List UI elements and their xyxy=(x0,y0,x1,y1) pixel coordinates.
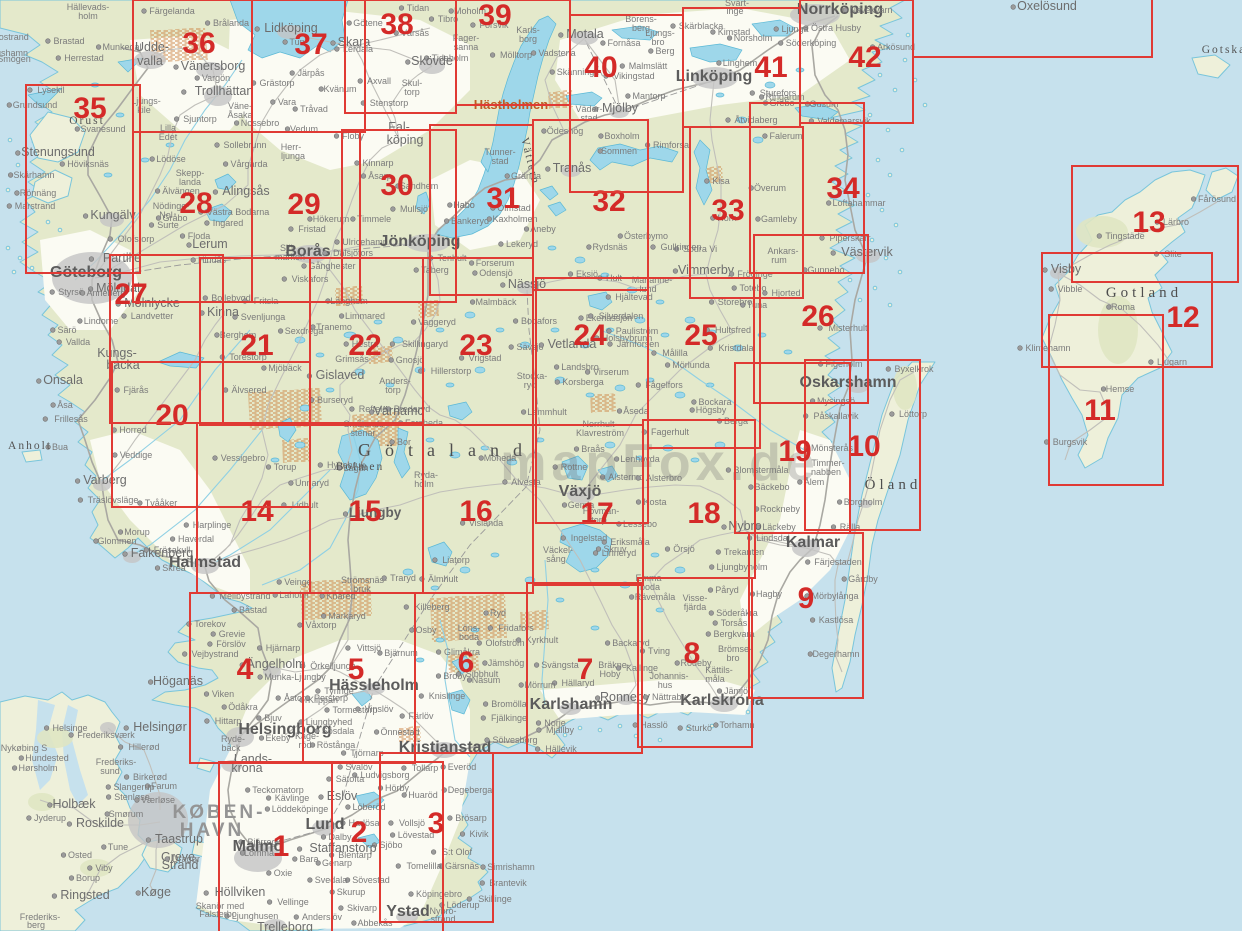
place-label: Roma xyxy=(1111,302,1135,312)
city-dot xyxy=(341,751,346,756)
sheet-number-21[interactable]: 21 xyxy=(240,329,273,362)
city-dot xyxy=(195,76,200,81)
place-label: sång xyxy=(546,554,566,564)
place-label: Särö xyxy=(57,325,76,335)
city-dot xyxy=(620,64,625,69)
city-dot xyxy=(501,283,506,288)
sheet-number-2[interactable]: 2 xyxy=(351,816,368,849)
sheet-number-6[interactable]: 6 xyxy=(458,646,475,679)
city-dot xyxy=(257,646,262,651)
place-label: hus xyxy=(658,680,673,690)
city-dot xyxy=(1097,234,1102,239)
place-label: Hundested xyxy=(25,753,69,763)
skerry xyxy=(12,270,16,274)
place-label: Svenljunga xyxy=(241,312,286,322)
place-label: Forserum xyxy=(476,258,515,268)
place-label: Vänersborg xyxy=(181,59,246,73)
sheet-number-38[interactable]: 38 xyxy=(380,8,413,41)
city-dot xyxy=(1191,197,1196,202)
city-dot xyxy=(351,217,356,222)
city-dot xyxy=(750,91,755,96)
place-label: Rävemåla xyxy=(635,592,676,602)
city-dot xyxy=(234,121,239,126)
city-dot xyxy=(149,223,154,228)
place-label: Götene xyxy=(353,18,383,28)
city-dot xyxy=(732,286,737,291)
city-dot xyxy=(318,463,323,468)
place-label: Roskilde xyxy=(76,816,124,830)
place-label: Brösarp xyxy=(455,813,487,823)
city-dot xyxy=(262,366,267,371)
place-label: Lysekil xyxy=(37,85,64,95)
skerry xyxy=(898,270,902,274)
place-label: Skärblacka xyxy=(679,21,724,31)
city-dot xyxy=(293,107,298,112)
region-label: Bolmen xyxy=(336,461,384,473)
place-label: Grundsund xyxy=(13,100,58,110)
place-label: Fal- xyxy=(388,120,410,134)
sheet-number-26[interactable]: 26 xyxy=(801,300,834,333)
city-dot xyxy=(537,728,542,733)
place-label: Påskallavik xyxy=(813,411,859,421)
city-dot xyxy=(709,565,714,570)
place-label: Landvetter xyxy=(131,311,174,321)
place-label: Trelleborg xyxy=(257,920,313,931)
place-label: Kosta xyxy=(643,497,666,507)
city-dot xyxy=(106,795,111,800)
moor-hatch xyxy=(282,438,311,463)
place-label: Torhamn xyxy=(719,720,754,730)
city-dot xyxy=(15,191,20,196)
place-label: Herrestad xyxy=(64,53,104,63)
place-label: Killeberg xyxy=(414,602,449,612)
city-dot xyxy=(267,900,272,905)
city-dot xyxy=(308,878,313,883)
skerry xyxy=(746,710,750,714)
place-label: Ystad xyxy=(386,903,430,920)
place-label: Tjörnarp xyxy=(350,748,384,758)
place-label: Hoby xyxy=(599,669,621,679)
watermark: mapFox.de xyxy=(500,434,820,492)
city-dot xyxy=(562,503,567,508)
skerry xyxy=(873,286,877,290)
sheet-number-29[interactable]: 29 xyxy=(287,188,320,221)
city-dot xyxy=(636,383,641,388)
city-dot xyxy=(831,251,836,256)
city-dot xyxy=(28,88,33,93)
sheet-number-24[interactable]: 24 xyxy=(573,319,607,352)
small-lake xyxy=(716,93,724,97)
city-dot xyxy=(203,296,208,301)
city-dot xyxy=(460,832,465,837)
sheet-number-4[interactable]: 4 xyxy=(237,653,254,686)
place-label: Berg xyxy=(655,46,674,56)
place-label: Marstrand xyxy=(15,201,56,211)
city-dot xyxy=(255,27,260,32)
sheet-number-12[interactable]: 12 xyxy=(1166,301,1199,334)
place-label: Traryd xyxy=(390,573,416,583)
city-dot xyxy=(210,594,215,599)
place-label: Höllviken xyxy=(215,885,266,899)
sheet-number-13[interactable]: 13 xyxy=(1132,206,1165,239)
small-lake xyxy=(295,442,305,448)
city-dot xyxy=(282,277,287,282)
sheet-number-16[interactable]: 16 xyxy=(459,495,492,528)
place-label: Lindome xyxy=(84,316,119,326)
place-label: Grevie xyxy=(219,629,246,639)
city-dot xyxy=(608,342,613,347)
region-label: Gotland xyxy=(1106,285,1182,301)
city-dot xyxy=(831,525,836,530)
place-label: Vimmerby xyxy=(678,263,735,277)
city-dot xyxy=(404,605,409,610)
city-dot xyxy=(542,129,547,134)
sheet-number-8[interactable]: 8 xyxy=(684,637,701,670)
place-label: Skövde xyxy=(411,54,453,68)
city-dot xyxy=(554,365,559,370)
city-dot xyxy=(636,500,641,505)
city-dot xyxy=(449,9,454,14)
place-label: Helsingør xyxy=(133,720,187,734)
city-dot xyxy=(890,412,895,417)
city-dot xyxy=(156,216,161,221)
region-label: Öland xyxy=(865,476,922,493)
city-dot xyxy=(587,245,592,250)
city-dot xyxy=(37,379,42,384)
city-dot xyxy=(50,290,55,295)
skerry xyxy=(6,246,10,250)
place-label: stenar xyxy=(350,428,375,438)
place-label: Höganäs xyxy=(153,674,203,688)
city-dot xyxy=(320,594,325,599)
small-lake xyxy=(326,388,334,392)
place-label: Hittarp xyxy=(215,716,242,726)
place-label: Nykøbing S xyxy=(1,743,48,753)
place-label: Fjärås xyxy=(123,385,149,395)
sheet-number-34[interactable]: 34 xyxy=(826,172,860,205)
city-dot xyxy=(539,343,544,348)
sheet-number-41[interactable]: 41 xyxy=(754,51,787,84)
skerry xyxy=(598,728,602,732)
sheet-number-22[interactable]: 22 xyxy=(348,329,381,362)
city-dot xyxy=(410,628,415,633)
city-dot xyxy=(706,632,711,637)
place-label: Hagby xyxy=(756,589,783,599)
skerry xyxy=(6,188,10,192)
sheet-number-15[interactable]: 15 xyxy=(348,495,381,528)
skerry xyxy=(888,173,892,177)
city-dot xyxy=(618,234,623,239)
city-dot xyxy=(629,595,634,600)
place-label: Mjöbäck xyxy=(268,363,302,373)
city-dot xyxy=(223,162,228,167)
city-dot xyxy=(555,380,560,385)
place-label: Vejbystrand xyxy=(191,649,238,659)
city-dot xyxy=(67,822,72,827)
place-label: torp xyxy=(404,87,420,97)
place-label: röd xyxy=(298,740,311,750)
skerry xyxy=(858,298,862,302)
city-dot xyxy=(331,41,336,46)
city-dot xyxy=(516,638,521,643)
city-dot xyxy=(222,705,227,710)
place-label: Gullringen xyxy=(660,242,701,252)
city-dot xyxy=(1049,287,1054,292)
skerry xyxy=(848,278,852,282)
place-label: Arkösund xyxy=(877,42,915,52)
sheet-number-25[interactable]: 25 xyxy=(684,319,717,352)
skerry xyxy=(886,128,890,132)
city-dot xyxy=(708,588,713,593)
sheet-number-18[interactable]: 18 xyxy=(687,497,720,530)
city-dot xyxy=(325,708,330,713)
city-dot xyxy=(561,536,566,541)
place-label: Stenungsund xyxy=(21,145,95,159)
place-label: Hørsholm xyxy=(18,763,57,773)
place-label: Sösdala xyxy=(322,726,355,736)
place-label: Trollhättan xyxy=(195,84,254,98)
sheet-number-20[interactable]: 20 xyxy=(155,399,188,432)
place-label: holm xyxy=(78,11,98,21)
sheet-number-30[interactable]: 30 xyxy=(380,169,413,202)
place-label: Norje xyxy=(544,718,566,728)
city-dot xyxy=(83,214,88,219)
place-label: Österbymo xyxy=(624,231,668,241)
city-dot xyxy=(352,921,357,926)
city-dot xyxy=(617,409,622,414)
city-dot xyxy=(709,300,714,305)
city-dot xyxy=(519,683,524,688)
city-dot xyxy=(266,465,271,470)
place-label: Hjorted xyxy=(771,288,800,298)
place-label: Örsjö xyxy=(673,544,695,554)
place-label: Färjestaden xyxy=(814,557,862,567)
place-label: Oxie xyxy=(274,868,293,878)
city-dot xyxy=(106,785,111,790)
sheet-number-3[interactable]: 3 xyxy=(428,807,445,840)
city-dot xyxy=(705,179,710,184)
city-dot xyxy=(1043,268,1048,273)
city-dot xyxy=(211,632,216,637)
small-lake xyxy=(675,392,685,398)
place-label: HAVN xyxy=(180,820,244,841)
city-dot xyxy=(118,530,123,535)
city-dot xyxy=(257,716,262,721)
city-dot xyxy=(763,134,768,139)
place-label: berg xyxy=(27,920,45,930)
city-dot xyxy=(1011,5,1016,10)
city-dot xyxy=(350,407,355,412)
place-label: Falerum xyxy=(769,131,802,141)
city-dot xyxy=(411,320,416,325)
sheet-number-27[interactable]: 27 xyxy=(114,278,147,311)
place-label: Tollarp xyxy=(412,763,439,773)
sheet-number-23[interactable]: 23 xyxy=(459,329,492,362)
skerry xyxy=(880,208,884,212)
place-label: Edet xyxy=(159,132,178,142)
place-label: Vellinge xyxy=(277,897,309,907)
small-lake xyxy=(496,328,504,332)
place-label: Boxholm xyxy=(604,131,639,141)
sheet-index-map: HunnebostrandKungshamnSmögenBrastadHerre… xyxy=(0,0,1242,931)
city-dot xyxy=(550,70,555,75)
place-label: Sätofta xyxy=(336,774,365,784)
sheet-number-5[interactable]: 5 xyxy=(348,653,365,686)
city-dot xyxy=(155,566,160,571)
place-label: Sjöbo xyxy=(379,840,402,850)
place-label: sund xyxy=(100,766,120,776)
sheet-number-42[interactable]: 42 xyxy=(848,41,881,74)
city-dot xyxy=(191,258,196,263)
city-dot xyxy=(419,694,424,699)
city-dot xyxy=(142,9,147,14)
place-label: Kisa xyxy=(712,176,730,186)
place-label: Jönköping xyxy=(380,233,461,250)
place-label: Knislinge xyxy=(429,691,466,701)
sheet-number-32[interactable]: 32 xyxy=(592,185,625,218)
city-dot xyxy=(52,894,57,899)
place-label: Tuna xyxy=(747,300,767,310)
sheet-number-11[interactable]: 11 xyxy=(1084,394,1116,427)
place-label: S:t Olof xyxy=(442,847,473,857)
city-dot xyxy=(358,79,363,84)
small-lake xyxy=(656,300,664,304)
sheet-number-19[interactable]: 19 xyxy=(778,435,811,468)
sheet-number-39[interactable]: 39 xyxy=(478,0,511,32)
city-dot xyxy=(122,314,127,319)
city-dot xyxy=(343,512,348,517)
place-label: Sjuntorp xyxy=(183,114,217,124)
city-dot xyxy=(170,537,175,542)
small-lake xyxy=(551,328,559,332)
city-dot xyxy=(675,661,680,666)
skerry xyxy=(618,724,622,728)
skerry xyxy=(866,193,870,197)
city-dot xyxy=(182,652,187,657)
skerry xyxy=(903,58,907,62)
place-label: Järnforsen xyxy=(617,339,660,349)
place-label: Vårgårda xyxy=(230,159,267,169)
small-lake xyxy=(116,113,124,117)
place-label: Brastad xyxy=(53,36,84,46)
city-dot xyxy=(593,551,598,556)
sheet-number-28[interactable]: 28 xyxy=(179,187,212,220)
city-dot xyxy=(643,695,648,700)
skerry xyxy=(906,33,910,37)
small-lake xyxy=(548,246,556,250)
place-label: Lärbro xyxy=(1163,217,1189,227)
place-label: Veinge xyxy=(284,577,312,587)
place-label: Kalmar xyxy=(786,534,840,551)
sheet-number-14[interactable]: 14 xyxy=(240,495,274,528)
sheet-number-33[interactable]: 33 xyxy=(711,194,744,227)
city-dot xyxy=(180,234,185,239)
small-lake xyxy=(436,328,444,332)
sheet-number-35[interactable]: 35 xyxy=(73,92,106,125)
sheet-number-36[interactable]: 36 xyxy=(182,27,215,60)
city-dot xyxy=(665,363,670,368)
city-dot xyxy=(155,189,160,194)
city-dot xyxy=(305,696,310,701)
place-label: Hillerød xyxy=(128,742,159,752)
small-lake xyxy=(316,353,324,357)
place-label: Viken xyxy=(212,689,234,699)
place-label: Kinnarp xyxy=(362,158,393,168)
city-dot xyxy=(276,696,281,701)
place-label: Værløse xyxy=(141,795,175,805)
city-dot xyxy=(649,49,654,54)
sheet-number-40[interactable]: 40 xyxy=(584,51,617,84)
sheet-number-37[interactable]: 37 xyxy=(294,28,327,61)
small-lake xyxy=(446,383,454,387)
city-dot xyxy=(43,417,48,422)
place-label: Trekanten xyxy=(724,547,764,557)
place-label: Tråvad xyxy=(300,104,328,114)
sheet-number-1[interactable]: 1 xyxy=(273,830,290,863)
place-label: Åsa xyxy=(57,400,73,410)
place-label: Horred xyxy=(119,425,147,435)
city-dot xyxy=(585,370,590,375)
place-label: Køge xyxy=(141,885,171,899)
city-dot xyxy=(75,479,80,484)
small-lake xyxy=(300,405,310,411)
city-dot xyxy=(588,314,593,319)
place-label: Gånghester xyxy=(308,261,355,271)
sheet-number-31[interactable]: 31 xyxy=(486,182,519,215)
city-dot xyxy=(729,272,734,277)
city-dot xyxy=(316,861,321,866)
city-dot xyxy=(124,775,129,780)
skerry xyxy=(8,138,12,142)
city-dot xyxy=(165,857,170,862)
place-label: Liatorp xyxy=(442,555,470,565)
city-dot xyxy=(289,227,294,232)
city-dot xyxy=(513,319,518,324)
place-label: Hillerstorp xyxy=(431,366,472,376)
place-label: Mölltorp xyxy=(500,50,532,60)
place-label: Vargön xyxy=(202,73,230,83)
place-label: Svängsta xyxy=(541,660,579,670)
place-label: Jämjö xyxy=(724,686,748,696)
city-dot xyxy=(607,329,612,334)
place-label: Linköping xyxy=(676,68,752,85)
city-dot xyxy=(294,915,299,920)
sheet-number-9[interactable]: 9 xyxy=(798,582,815,615)
place-label: Ängelholm xyxy=(246,657,305,671)
place-label: Nossebro xyxy=(241,118,280,128)
place-label: Sommen xyxy=(601,146,637,156)
city-dot xyxy=(756,217,761,222)
city-dot xyxy=(485,738,490,743)
city-dot xyxy=(509,345,514,350)
place-label: Teckomatorp xyxy=(252,785,304,795)
city-dot xyxy=(692,400,697,405)
skerry xyxy=(46,220,50,224)
city-dot xyxy=(389,821,394,826)
place-label: bro xyxy=(726,653,739,663)
city-dot xyxy=(297,847,302,852)
sheet-number-10[interactable]: 10 xyxy=(847,430,880,463)
city-dot xyxy=(842,577,847,582)
sheet-number-17[interactable]: 17 xyxy=(580,497,613,530)
city-dot xyxy=(184,523,189,528)
city-dot xyxy=(444,219,449,224)
place-label: Gamleby xyxy=(761,214,798,224)
place-label: Hunnebostrand xyxy=(0,32,29,42)
city-dot xyxy=(267,871,272,876)
sheet-number-7[interactable]: 7 xyxy=(577,653,594,686)
place-label: Hässleholm xyxy=(329,677,419,694)
